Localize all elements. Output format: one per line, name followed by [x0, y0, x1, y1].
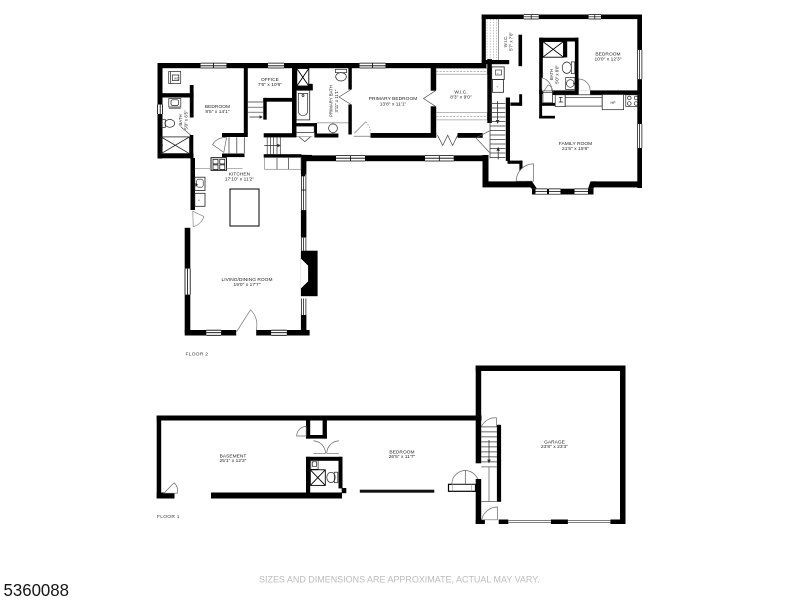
- svg-text:23'8" x 23'3": 23'8" x 23'3": [541, 444, 568, 450]
- svg-text:FLOOR 1: FLOOR 1: [157, 514, 180, 520]
- svg-text:HP: HP: [611, 101, 617, 105]
- svg-text:25'1" x 12'3": 25'1" x 12'3": [220, 458, 247, 464]
- svg-text:5'0" x 6'5": 5'0" x 6'5": [183, 110, 188, 130]
- svg-text:W.I.C.: W.I.C.: [503, 36, 508, 48]
- svg-text:3'11" x 11'1": 3'11" x 11'1": [334, 89, 339, 112]
- svg-text:5'0" x 8'0": 5'0" x 8'0": [554, 65, 559, 84]
- svg-text:21'5" x 15'8": 21'5" x 15'8": [562, 146, 589, 152]
- svg-text:BATH: BATH: [178, 114, 183, 125]
- svg-text:7'6" x 10'6": 7'6" x 10'6": [258, 82, 282, 88]
- svg-text:SIZES AND DIMENSIONS ARE APPRO: SIZES AND DIMENSIONS ARE APPROXIMATE, AC…: [259, 575, 540, 585]
- svg-text:WD: WD: [174, 76, 180, 80]
- svg-text:PRIMARY BEDROOM: PRIMARY BEDROOM: [369, 96, 418, 102]
- svg-text:FLOOR 2: FLOOR 2: [186, 352, 209, 358]
- svg-text:8'3" x 9'0": 8'3" x 9'0": [450, 94, 472, 100]
- svg-text:17'10" x 11'2": 17'10" x 11'2": [225, 177, 255, 183]
- svg-text:PRIMARY BATH: PRIMARY BATH: [329, 85, 334, 117]
- svg-text:19'0" x 17'7": 19'0" x 17'7": [234, 282, 261, 288]
- svg-text:5'7" x 7'6": 5'7" x 7'6": [508, 32, 513, 51]
- svg-text:+: +: [497, 85, 499, 89]
- svg-text:10'0" x 12'3": 10'0" x 12'3": [595, 56, 622, 62]
- svg-text:BATH: BATH: [549, 69, 554, 80]
- svg-text:26'5" x 11'7": 26'5" x 11'7": [389, 454, 416, 460]
- svg-text:13'8" x 11'1": 13'8" x 11'1": [380, 102, 407, 108]
- svg-text:5360088: 5360088: [4, 580, 70, 600]
- svg-text:8'5" x 14'1": 8'5" x 14'1": [205, 109, 229, 115]
